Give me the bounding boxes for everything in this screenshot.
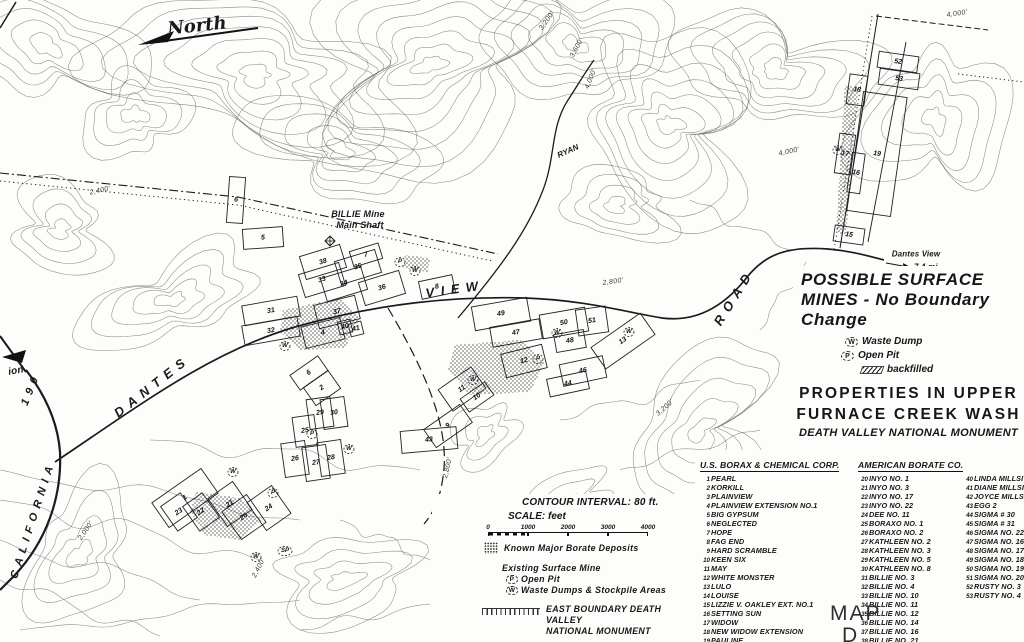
key-borate-deposits: Known Major Borate Deposits [484, 542, 698, 554]
claim-number: 13 [700, 584, 710, 591]
billie-mine-label: BILLIE Mine [331, 209, 384, 219]
claim-row: 46SIGMA NO. 22 [963, 528, 1024, 537]
claim-name: NEW WIDOW EXTENSION [711, 627, 803, 636]
claim-name: INYO NO. 1 [869, 474, 909, 483]
claim-row: 48SIGMA NO. 17 [963, 546, 1024, 555]
claim-name: SIGMA NO. 16 [974, 537, 1024, 546]
claim-row: 51SIGMA NO. 20 [963, 573, 1024, 582]
key-boundary-label1: EAST BOUNDARY DEATH VALLEY [546, 604, 698, 626]
topographic-map-canvas: 5638357333436831323744041495051474813124… [0, 0, 1024, 642]
map-key: Known Major Borate Deposits Existing Sur… [432, 536, 698, 642]
elevation-label: 2,400' [89, 185, 111, 196]
claim-row: 9HARD SCRAMBLE [700, 546, 839, 555]
scale-label: SCALE: feet [508, 511, 694, 522]
claim-name: KATHLEEN NO. 5 [869, 555, 931, 564]
claim-row: 32BILLIE NO. 4 [858, 582, 959, 591]
claim-row: 24DEE NO. 11 [858, 510, 959, 519]
usborax-column: U.S. BORAX & CHEMICAL CORP. 1PEARL2KORKI… [700, 455, 839, 642]
claim-number: 23 [858, 503, 868, 510]
claim-name: SIGMA NO. 18 [974, 555, 1024, 564]
claim-number: 46 [963, 530, 973, 537]
claim-row: 22INYO NO. 17 [858, 492, 959, 501]
claim-name: KEEN SIX [711, 555, 746, 564]
key-existing-label: Existing Surface Mine [502, 563, 601, 574]
elevation-label: 3,200' [538, 10, 556, 31]
claim-number: 14 [700, 593, 710, 600]
road-label-california: CALIFORNIA [8, 460, 57, 581]
claim-number: 10 [700, 557, 710, 564]
claim-number: 3 [700, 494, 710, 501]
claim-name: RUSTY NO. 3 [974, 582, 1021, 591]
american-borate-column: AMERICAN BORATE CO. 20INYO NO. 121INYO N… [858, 455, 1024, 642]
claim-name: SIGMA # 30 [974, 510, 1015, 519]
claim-number: 20 [858, 476, 868, 483]
claim-name: BILLIE NO. 10 [869, 591, 919, 600]
claim-row: 3PLAINVIEW [700, 492, 839, 501]
claim-row: 40LINDA MILLSITE [963, 474, 1024, 483]
claim-number: 51 [963, 575, 973, 582]
map-title-line3: Change [801, 310, 1024, 330]
claim-number: 21 [858, 485, 868, 492]
claim-name: DIANE MILLSITE [974, 483, 1024, 492]
map-sheet-number: MAP D [830, 602, 882, 642]
claim-row: 21INYO NO. 3 [858, 483, 959, 492]
scale-tick-label: 3000 [601, 524, 615, 531]
claim-name: LIZZIE V. OAKLEY EXT. NO.1 [711, 600, 813, 609]
elevation-label: 3,600' [569, 37, 585, 59]
claim-row: 19PAULINE [700, 636, 839, 642]
map-subtitle-line2: FURNACE CREEK WASH [793, 404, 1024, 425]
claim-name: BILLIE NO. 4 [869, 582, 915, 591]
claim-number: 1 [700, 476, 710, 483]
north-label: North [166, 12, 227, 39]
claim-number: 30 [858, 566, 868, 573]
claim-number: 29 [858, 557, 868, 564]
claim-number: 4 [700, 503, 710, 510]
elevation-label: 2,000' [77, 520, 95, 541]
scale-tick-label: 0 [486, 524, 490, 531]
scale-tick-label: 2000 [561, 524, 575, 531]
claim-name: JOYCE MILLSITE [974, 492, 1024, 501]
claim-number: 27 [858, 539, 868, 546]
key-waste-label: Waste Dumps & Stockpile Areas [521, 585, 666, 596]
claim-number: 47 [963, 539, 973, 546]
symbol-w-icon: W [845, 337, 858, 347]
map-subtitle-line1: PROPERTIES IN UPPER [793, 383, 1024, 404]
waste-dump-symbol-icon: W [506, 586, 518, 595]
claim-row: 2KORKILL [700, 483, 839, 492]
claim-row: 53RUSTY NO. 4 [963, 591, 1024, 600]
claim-name: KATHLEEN NO. 3 [869, 546, 931, 555]
scale-tick-label: 1000 [521, 524, 535, 531]
claim-row: 25BORAXO NO. 1 [858, 519, 959, 528]
open-pit-symbol-icon: P [506, 575, 518, 584]
claim-row: 42JOYCE MILLSITE [963, 492, 1024, 501]
claim-row: 14LOUISE [700, 591, 839, 600]
claim-name: HOPE [711, 528, 732, 537]
claim-name: WHITE MONSTER [711, 573, 774, 582]
key-open-pit-label: Open Pit [521, 574, 560, 585]
company-name-usborax: U.S. BORAX & CHEMICAL CORP. [700, 460, 839, 472]
claim-number: 2 [700, 485, 710, 492]
claim-number: 31 [858, 575, 868, 582]
scale-ticks: 01000200030004000 [488, 524, 648, 532]
cutoff-label: ion [7, 364, 24, 378]
claim-name: INYO NO. 3 [869, 483, 909, 492]
claim-row: 49SIGMA NO. 18 [963, 555, 1024, 564]
claim-row: 30KATHLEEN NO. 8 [858, 564, 959, 573]
elevation-label: 3,200' [655, 398, 675, 417]
claim-number: 12 [700, 575, 710, 582]
road-label-dantes: DANTES [111, 352, 193, 421]
claim-number: 18 [700, 629, 710, 636]
claim-name: KATHLEEN NO. 8 [869, 564, 931, 573]
claim-row: 20INYO NO. 1 [858, 474, 959, 483]
claim-number: 25 [858, 521, 868, 528]
elevation-label: 2,800' [602, 277, 624, 287]
claim-name: LINDA MILLSITE [974, 474, 1024, 483]
claim-number: 5 [700, 512, 710, 519]
claim-row: 41DIANE MILLSITE [963, 483, 1024, 492]
claim-number: 24 [858, 512, 868, 519]
claim-row: 12WHITE MONSTER [700, 573, 839, 582]
claim-row: 50SIGMA NO. 19 [963, 564, 1024, 573]
elevation-label: 2,800' [442, 457, 454, 479]
claim-number: 26 [858, 530, 868, 537]
map-title-line2: MINES - No Boundary [801, 290, 1024, 310]
claim-number: 49 [963, 557, 973, 564]
claim-name: FAG END [711, 537, 744, 546]
map-sheet-letter: D [842, 626, 882, 642]
elevation-label: 2,400' [251, 557, 267, 579]
claim-row: 1PEARL [700, 474, 839, 483]
key-open-pit: P Open Pit [506, 574, 698, 585]
claim-row: 15LIZZIE V. OAKLEY EXT. NO.1 [700, 600, 839, 609]
claim-number: 28 [858, 548, 868, 555]
claim-name: LOUISE [711, 591, 739, 600]
legend-item-label: backfilled [887, 363, 933, 377]
claim-row: 17WIDOW [700, 618, 839, 627]
claim-name: PLAINVIEW EXTENSION NO.1 [711, 501, 817, 510]
claim-name: BORAXO NO. 2 [869, 528, 923, 537]
usborax-claims: 1PEARL2KORKILL3PLAINVIEW4PLAINVIEW EXTEN… [700, 474, 839, 642]
key-boundary-label2: NATIONAL MONUMENT [546, 626, 698, 637]
claim-row: 18NEW WIDOW EXTENSION [700, 627, 839, 636]
claim-row: 47SIGMA NO. 16 [963, 537, 1024, 546]
title-block: POSSIBLE SURFACE MINES - No Boundary Cha… [793, 266, 1024, 442]
claim-number: 17 [700, 620, 710, 627]
claim-name: SIGMA # 31 [974, 519, 1015, 528]
claim-row: 26BORAXO NO. 2 [858, 528, 959, 537]
map-sheet-word: MAP [830, 602, 882, 626]
claim-name: SIGMA NO. 22 [974, 528, 1024, 537]
claim-name: SIGMA NO. 20 [974, 573, 1024, 582]
claim-name: INYO NO. 22 [869, 501, 913, 510]
claim-name: RUSTY NO. 4 [974, 591, 1021, 600]
claim-row: 31BILLIE NO. 3 [858, 573, 959, 582]
claim-row: 13LULO [700, 582, 839, 591]
claim-number: 50 [963, 566, 973, 573]
american-borate-claims-b: 40LINDA MILLSITE41DIANE MILLSITE42JOYCE … [963, 474, 1024, 642]
claim-number: 15 [700, 602, 710, 609]
claim-name: HARD SCRAMBLE [711, 546, 777, 555]
claim-row: 43EGG 2 [963, 501, 1024, 510]
claim-name: EGG 2 [974, 501, 997, 510]
contour-interval-label: CONTOUR INTERVAL: 80 ft. [522, 497, 694, 508]
legend-item: WWaste Dump [845, 335, 1024, 349]
claim-number: 8 [700, 539, 710, 546]
place-label-ryan: RYAN [556, 142, 580, 159]
claim-number: 22 [858, 494, 868, 501]
elevation-label: 4,000' [584, 68, 598, 90]
claim-number: 44 [963, 512, 973, 519]
claim-name: PLAINVIEW [711, 492, 753, 501]
claim-number: 7 [700, 530, 710, 537]
claim-number: 6 [700, 521, 710, 528]
claim-number: 9 [700, 548, 710, 555]
claim-name: WIDOW [711, 618, 738, 627]
map-title-line1: POSSIBLE SURFACE [801, 270, 1024, 290]
claim-number: 43 [963, 503, 973, 510]
claim-row: 5BIG GYPSUM [700, 510, 839, 519]
legend-item: POpen Pit [841, 349, 1024, 363]
stipple-swatch-icon [484, 542, 498, 554]
key-east-boundary: EAST BOUNDARY DEATH VALLEY NATIONAL MONU… [482, 604, 698, 637]
claim-row: 23INYO NO. 22 [858, 501, 959, 510]
claim-row: 44SIGMA # 30 [963, 510, 1024, 519]
road-label-view: VIEW [425, 277, 486, 300]
claim-row: 33BILLIE NO. 10 [858, 591, 959, 600]
claim-row: 28KATHLEEN NO. 3 [858, 546, 959, 555]
claim-number: 48 [963, 548, 973, 555]
legend-item-label: Open Pit [858, 349, 899, 363]
backfill-swatch-icon [860, 366, 885, 374]
claim-name: KORKILL [711, 483, 744, 492]
symbol-p-icon: P [841, 351, 854, 361]
claim-name: SETTING SUN [711, 609, 761, 618]
road-label-road: ROAD [711, 266, 758, 328]
legend-item: backfilled [861, 363, 1024, 377]
claim-row: 45SIGMA # 31 [963, 519, 1024, 528]
claim-name: SIGMA NO. 17 [974, 546, 1024, 555]
claim-number: 41 [963, 485, 973, 492]
title-legend: WWaste DumpPOpen Pitbackfilled [845, 335, 1024, 377]
scale-tick-label: 4000 [641, 524, 655, 531]
boundary-hatch-icon [482, 608, 540, 615]
claim-number: 42 [963, 494, 973, 501]
scale-block: CONTOUR INTERVAL: 80 ft. SCALE: feet 010… [432, 494, 698, 542]
claim-name: KATHLEEN NO. 2 [869, 537, 931, 546]
claim-name: MAY [711, 564, 727, 573]
claim-number: 40 [963, 476, 973, 483]
claim-number: 16 [700, 611, 710, 618]
claim-number: 53 [963, 593, 973, 600]
claim-number: 19 [700, 638, 710, 642]
claim-name: PEARL [711, 474, 736, 483]
road-label-190: 190 [19, 371, 43, 408]
claim-number: 11 [700, 566, 710, 573]
claim-name: LULO [711, 582, 731, 591]
claim-row: 11MAY [700, 564, 839, 573]
billie-mine-shaft-label: Main Shaft [336, 220, 383, 230]
claim-name: DEE NO. 11 [869, 510, 910, 519]
claim-row: 7HOPE [700, 528, 839, 537]
claim-row: 27KATHLEEN NO. 2 [858, 537, 959, 546]
map-subtitle-line3: DEATH VALLEY NATIONAL MONUMENT [793, 427, 1024, 439]
claim-number: 52 [963, 584, 973, 591]
claim-name: BORAXO NO. 1 [869, 519, 923, 528]
claim-name: BIG GYPSUM [711, 510, 759, 519]
claim-name: PAULINE [711, 636, 743, 642]
key-existing-mine: Existing Surface Mine [502, 563, 698, 574]
claim-number: 32 [858, 584, 868, 591]
claim-name: SIGMA NO. 19 [974, 564, 1024, 573]
claim-name: NEGLECTED [711, 519, 757, 528]
claim-number: 45 [963, 521, 973, 528]
claim-row: 4PLAINVIEW EXTENSION NO.1 [700, 501, 839, 510]
claim-row: 8FAG END [700, 537, 839, 546]
key-waste-dumps: W Waste Dumps & Stockpile Areas [506, 585, 698, 596]
claim-row: 29KATHLEEN NO. 5 [858, 555, 959, 564]
key-borate-label: Known Major Borate Deposits [504, 543, 639, 554]
claim-row: 16SETTING SUN [700, 609, 839, 618]
company-name-american-borate: AMERICAN BORATE CO. [858, 460, 963, 472]
legend-item-label: Waste Dump [862, 335, 922, 349]
claim-row: 10KEEN SIX [700, 555, 839, 564]
claim-row: 52RUSTY NO. 3 [963, 582, 1024, 591]
elevation-label: 4,000' [778, 146, 800, 157]
claim-name: INYO NO. 17 [869, 492, 913, 501]
claim-name: BILLIE NO. 3 [869, 573, 915, 582]
claim-row: 6NEGLECTED [700, 519, 839, 528]
elevation-label: 4,000' [946, 9, 968, 19]
dantes-view-label: Dantes View [892, 250, 941, 259]
claim-number: 33 [858, 593, 868, 600]
